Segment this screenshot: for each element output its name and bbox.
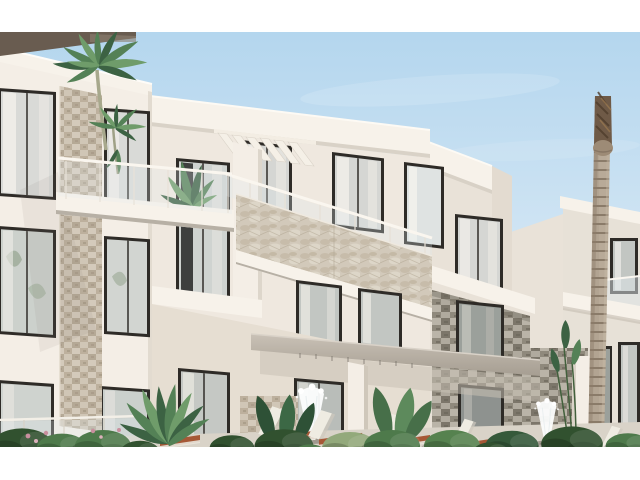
architectural-render (0, 0, 640, 480)
window-lw-4 (104, 236, 150, 337)
letterbox-top (0, 0, 640, 32)
left-wing-building (0, 32, 152, 464)
render-canvas (0, 0, 640, 480)
window-mid-2 (358, 288, 402, 351)
letterbox-bottom (0, 447, 640, 480)
